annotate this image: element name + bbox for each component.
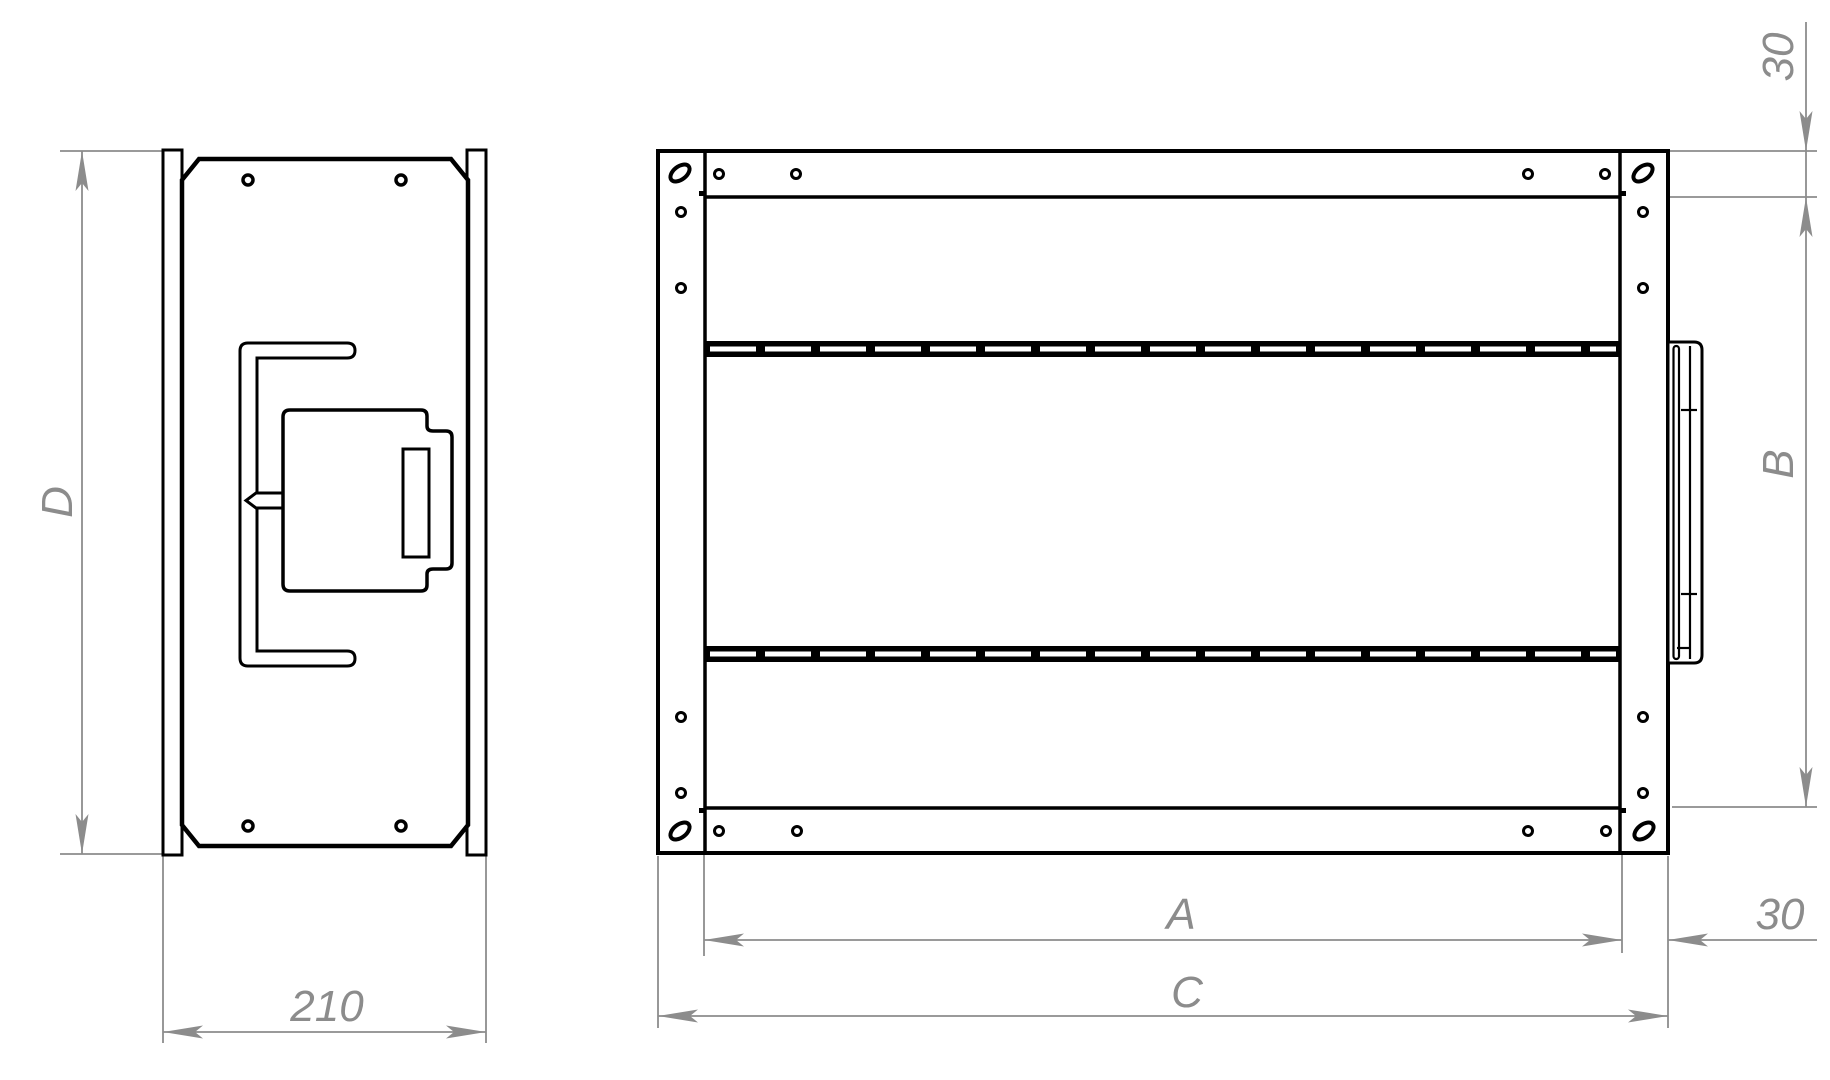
mounting-hole (793, 827, 802, 836)
mounting-hole (1602, 827, 1611, 836)
dim-b-label: B (1754, 449, 1803, 478)
corner-mark (699, 191, 704, 196)
mounting-hole (1601, 170, 1610, 179)
frame-outline (658, 151, 1668, 853)
dim-210-label: 210 (289, 982, 364, 1031)
mounting-hole (677, 284, 686, 293)
mounting-hole (1524, 827, 1533, 836)
mounting-hole (677, 713, 686, 722)
mounting-hole (715, 827, 724, 836)
panel-hole (396, 175, 406, 185)
mounting-hole (792, 170, 801, 179)
dim-30-bottom-label: 30 (1756, 890, 1805, 939)
corner-mark (699, 808, 704, 813)
mounting-hole (715, 170, 724, 179)
mounting-hole (1639, 284, 1648, 293)
side-left-flange-profile (163, 150, 182, 855)
drawing-canvas: D 210 30 B A 30 C (0, 0, 1830, 1080)
corner-mark (1621, 808, 1626, 813)
dim-c-label: C (1171, 968, 1204, 1017)
mounting-hole (1639, 208, 1648, 217)
mounting-hole (1639, 789, 1648, 798)
dim-d-label: D (33, 486, 82, 518)
mounting-hole (1639, 713, 1648, 722)
handle-pointer (246, 493, 283, 508)
panel-hole (243, 821, 253, 831)
dim-a-label: A (1163, 890, 1195, 939)
blade-seal-line-bottom (705, 646, 1620, 662)
mounting-hole (1524, 170, 1533, 179)
corner-mark (1621, 191, 1626, 196)
blade-seal-line-top (705, 341, 1620, 357)
panel-hole (243, 175, 253, 185)
mounting-hole (677, 208, 686, 217)
damper-drawing: D 210 30 B A 30 C (0, 0, 1830, 1080)
side-view (163, 150, 486, 855)
panel-hole (396, 821, 406, 831)
actuator-slot (403, 449, 429, 557)
dim-30-top-label: 30 (1754, 32, 1803, 81)
front-view (658, 151, 1702, 853)
connection-spigot (1668, 342, 1702, 663)
mounting-hole (677, 789, 686, 798)
